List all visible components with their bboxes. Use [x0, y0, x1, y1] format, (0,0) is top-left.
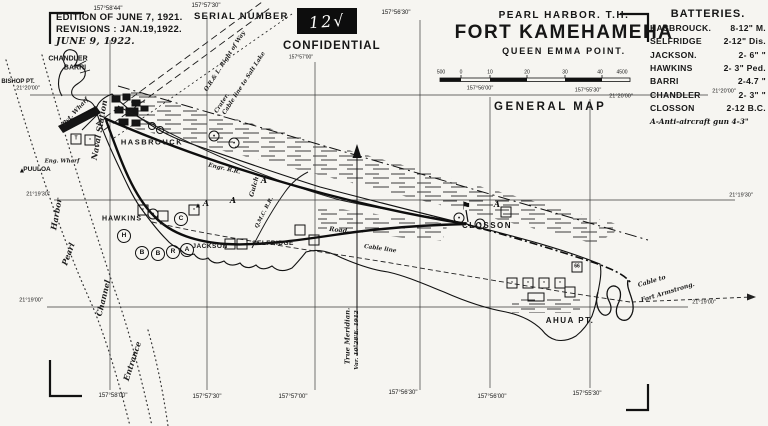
map-label-layer: CHANDLERBARRIBISHOP PT.PUULOAHASBROUCKHA…: [0, 0, 768, 426]
map-label-157-57-00: 157°57'00": [289, 56, 313, 61]
map-label-naval-station: Naval Station: [90, 99, 108, 160]
structure-symbol: [225, 239, 236, 250]
aa-gun-marker-symbol: A: [203, 199, 209, 207]
aa-gun-marker-symbol: A: [230, 196, 236, 204]
map-label-bishop-pt: BISHOP PT.: [1, 79, 34, 85]
map-label-21-20-00: 21°20'00": [16, 86, 40, 92]
structure-symbol: [158, 211, 169, 222]
map-label-157-57-30: 157°57'30": [191, 3, 220, 9]
map-label-157-55-30: 157°55'30": [572, 391, 601, 397]
map-label-puuloa: PUULOA: [23, 167, 50, 174]
map-label-20: 20: [524, 71, 530, 76]
map-label-21-19-00: 21°19'00": [692, 300, 716, 306]
map-label-21-20-00: 21°20'00": [712, 89, 736, 95]
structure-symbol: [295, 225, 306, 236]
gun-emplacement-symbol: •: [475, 219, 486, 230]
circled-structure-symbol: H: [117, 229, 131, 243]
map-label-hawkins: HAWKINS: [102, 216, 142, 223]
map-sheet: EDITION OF JUNE 7, 1921. REVISIONS : JAN…: [0, 0, 768, 426]
map-label-hasbrouck: HASBROUCK: [121, 138, 183, 146]
map-label-21-19-30: 21°19'30": [729, 193, 753, 199]
map-label-500: 500: [437, 71, 445, 76]
map-label-157-57-30: 157°57'30": [192, 394, 221, 400]
map-label-157-56-30: 157°56'30": [388, 390, 417, 396]
gun-emplacement-symbol: •: [454, 213, 465, 224]
structure-symbol: 66: [572, 262, 583, 273]
triangulation-station-symbol: ▲: [19, 168, 26, 175]
circled-structure-symbol: R: [166, 245, 180, 259]
map-label-gulch: Gulch: [249, 176, 260, 198]
map-label-eng-wharf: Eng. Wharf: [45, 159, 80, 165]
map-label-jackson: JACKSON: [192, 244, 227, 251]
map-label-4500: 4500: [616, 71, 627, 76]
gun-emplacement-symbol: •: [209, 131, 220, 142]
circled-structure-symbol: B: [135, 246, 149, 260]
map-label-21-19-30: 21°19'30": [26, 192, 50, 198]
map-label-157-57-00: 157°57'00": [278, 394, 307, 400]
aa-gun-marker-symbol: A: [494, 200, 500, 208]
map-label-0: 0: [460, 71, 463, 76]
map-label-q-m-c-r-r: Q.M.C. R.R.: [255, 197, 275, 230]
map-label-40: 40: [597, 71, 603, 76]
triangulation-station-symbol: ▲: [195, 203, 202, 210]
map-label-var-10-28-e-1912: Var. 10°28'E. 1912: [355, 310, 361, 370]
structure-symbol: [565, 287, 576, 298]
map-label-harbor: Harbor: [49, 197, 62, 230]
structure-symbol: ▪: [523, 278, 534, 289]
map-label-30: 30: [562, 71, 568, 76]
map-label-selfridge: SELFRIDGE: [252, 241, 294, 248]
map-label-157-56-00: 157°56'00": [477, 394, 506, 400]
map-label-157-56-30: 157°56'30": [381, 10, 410, 16]
structure-symbol: T: [71, 134, 82, 145]
gun-emplacement-symbol: •: [229, 138, 240, 149]
structure-symbol: [237, 239, 248, 250]
map-label-157-55-30: 157°55'30": [575, 88, 602, 94]
map-label-157-56-00: 157°56'00": [467, 86, 494, 92]
map-label-pearl: Pearl: [60, 242, 75, 267]
map-label-road: Road: [329, 227, 347, 235]
map-label-chandler: CHANDLER: [48, 56, 87, 63]
structure-symbol: ▪: [507, 278, 518, 289]
map-label-closson: CLOSSON: [462, 222, 512, 230]
circled-structure-symbol: B: [151, 247, 165, 261]
map-label-entrance: Entrance: [122, 340, 142, 381]
map-label-157-58-00: 157°58'00": [98, 393, 127, 399]
structure-symbol: ▪: [539, 278, 550, 289]
map-label-cable-to: Cable to: [637, 275, 666, 289]
map-label-engr-r-r: Engr. R.R.: [207, 163, 240, 176]
map-label-21-20-00: 21°20'00": [609, 94, 633, 100]
map-label-ahua-pt: AHUA PT.: [546, 317, 595, 325]
structure-symbol: [309, 235, 320, 246]
map-label-true-meridian: True Meridian.: [345, 308, 352, 365]
circled-structure-symbol: A: [180, 243, 194, 257]
map-label-21-19-00: 21°19'00": [19, 298, 43, 304]
map-label-barri: BARRI: [64, 65, 86, 72]
map-label-pvt-wharf: Pvt. Wharf: [62, 97, 90, 128]
circled-structure-symbol: C: [174, 212, 188, 226]
aa-gun-marker-symbol: A: [261, 176, 267, 184]
structure-symbol: ▪: [85, 135, 96, 146]
structure-symbol: [501, 207, 512, 218]
map-label-157-58-44: 157°58'44": [93, 6, 122, 12]
map-label-10: 10: [487, 71, 493, 76]
map-label-channel: Channel: [95, 279, 112, 317]
structure-symbol: [528, 293, 545, 302]
map-label-cable-line: Cable line: [363, 245, 396, 255]
flag-symbol: ⚑: [461, 202, 471, 213]
